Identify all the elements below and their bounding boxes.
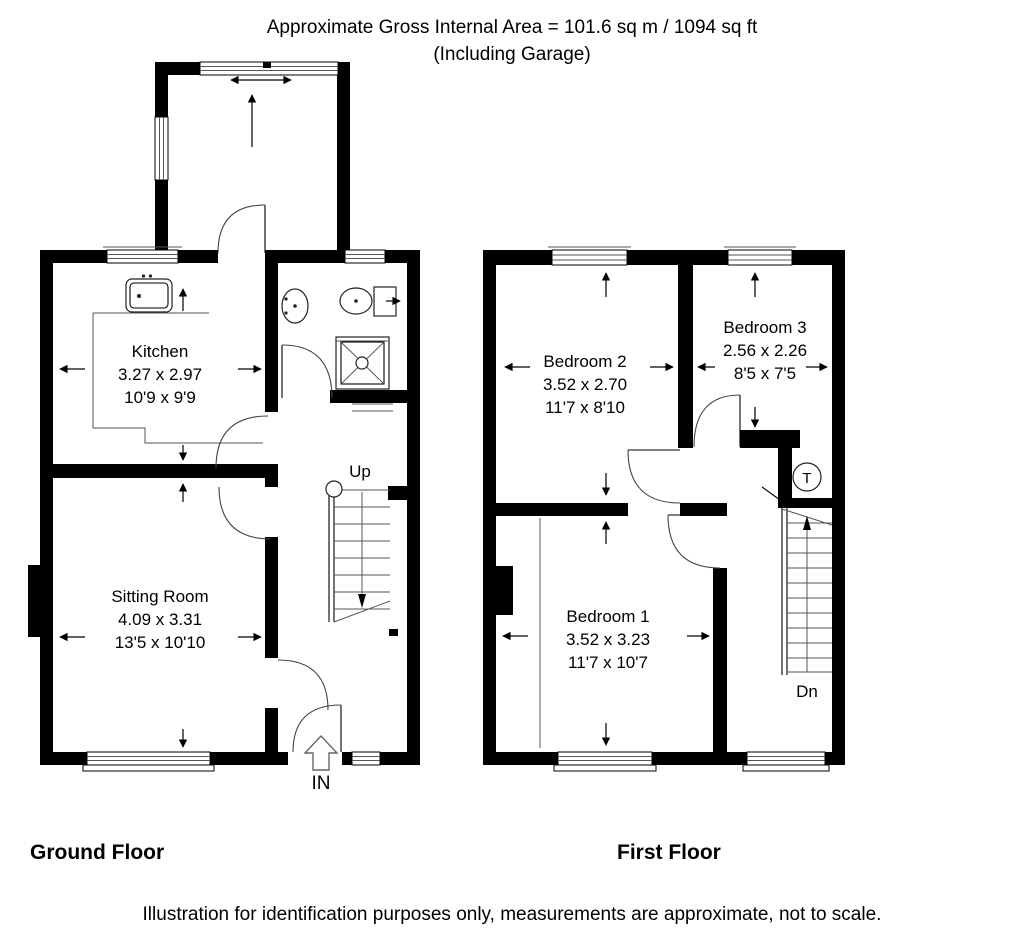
bedroom2-dim-imperial: 11'7 x 8'10 [545,398,625,417]
bedroom2-window [548,247,631,265]
first-floor-title: First Floor [617,841,721,865]
bedroom1-window [554,752,656,771]
sitting-room-dim-metric: 4.09 x 3.31 [118,610,202,629]
bathroom-door-arc [282,345,332,398]
bedroom3-dim-imperial: 8'5 x 7'5 [734,364,796,383]
kitchen-dim-imperial: 10'9 x 9'9 [124,388,196,407]
garage-window-left [155,117,168,180]
sitting-room-window [83,752,214,771]
sitting-room-dim-imperial: 13'5 x 10'10 [115,633,206,652]
bedroom2-label: Bedroom 2 [543,352,626,371]
bedroom1-dim-imperial: 11'7 x 10'7 [568,653,648,672]
bedroom3-dim-metric: 2.56 x 2.26 [723,341,807,360]
shower-icon [336,337,389,389]
entrance-label: IN [312,773,331,794]
floorplan-canvas: Kitchen 3.27 x 2.97 10'9 x 9'9 Sitting R… [0,0,1024,947]
bathroom-window [345,250,385,263]
tank-cupboard-door [762,487,780,500]
basin-icon [282,289,308,323]
sitting-room-label: Sitting Room [111,587,208,606]
ground-floor-title: Ground Floor [30,841,164,865]
bedroom1-label: Bedroom 1 [566,607,649,626]
kitchen-sink-icon [126,274,172,312]
sitting-room-door-arc [219,487,271,539]
tank-label: T [802,470,811,487]
bedroom1-dim-metric: 3.52 x 3.23 [566,630,650,649]
bedroom2-dim-metric: 3.52 x 2.70 [543,375,627,394]
bedroom2-door-arc [628,450,680,503]
garage-walls [155,62,350,255]
toilet-icon [340,287,400,316]
kitchen-label: Kitchen [132,342,189,361]
kitchen-window [103,247,182,263]
tank-symbol: T [793,463,821,491]
stairs-down-label: Dn [796,682,818,701]
stairs-up-label: Up [349,462,371,481]
ground-floor-plan: Kitchen 3.27 x 2.97 10'9 x 9'9 Sitting R… [28,62,420,794]
kitchen-door-arc [216,416,268,468]
entrance-side-window [352,752,380,765]
garage-dimension-arrows [231,80,291,147]
staircase-down [782,508,832,675]
bedroom1-door-arc [668,515,720,568]
disclaimer-text: Illustration for identification purposes… [0,904,1024,926]
garage-door-arc [218,205,265,253]
first-floor-plan: T [483,247,845,771]
landing-window [743,752,829,771]
bedroom3-window [724,247,796,265]
entrance-arrow-icon [305,736,337,770]
garage-window-top [200,62,338,75]
bedroom3-label: Bedroom 3 [723,318,806,337]
staircase-up [326,404,393,622]
hall-door-arc [278,660,328,710]
kitchen-dim-metric: 3.27 x 2.97 [118,365,202,384]
bedroom3-door-arc [694,395,740,447]
